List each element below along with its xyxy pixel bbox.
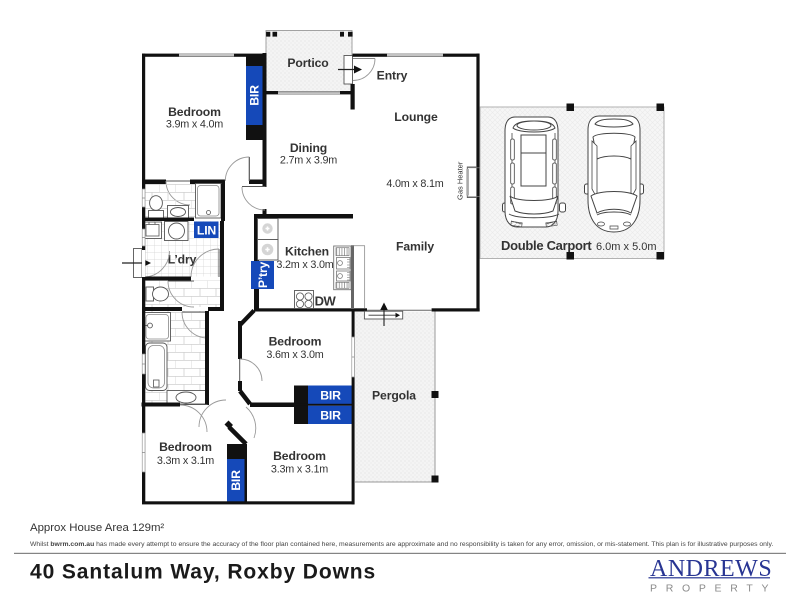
svg-text:6.0m x 5.0m: 6.0m x 5.0m: [596, 241, 657, 253]
svg-text:Portico: Portico: [287, 56, 328, 70]
svg-text:LIN: LIN: [197, 224, 217, 238]
svg-text:4.0m x 8.1m: 4.0m x 8.1m: [386, 178, 443, 190]
svg-text:Bedroom: Bedroom: [168, 105, 221, 119]
svg-text:BIR: BIR: [248, 85, 262, 106]
svg-text:Double Carport: Double Carport: [501, 238, 592, 253]
svg-text:Bedroom: Bedroom: [269, 335, 322, 349]
svg-text:Approx House Area 129m²: Approx House Area 129m²: [30, 522, 164, 534]
svg-text:3.2m x 3.0m: 3.2m x 3.0m: [276, 259, 333, 271]
svg-text:Family: Family: [396, 240, 434, 254]
svg-text:Dining: Dining: [290, 141, 327, 155]
svg-text:Entry: Entry: [377, 69, 408, 83]
svg-text:Kitchen: Kitchen: [285, 245, 329, 259]
svg-text:2.7m x 3.9m: 2.7m x 3.9m: [280, 155, 337, 167]
svg-text:P’try: P’try: [256, 261, 270, 288]
svg-text:3.6m x 3.0m: 3.6m x 3.0m: [266, 349, 323, 361]
svg-text:BIR: BIR: [229, 470, 243, 491]
svg-text:Bedroom: Bedroom: [273, 449, 326, 463]
svg-text:Gas Heater: Gas Heater: [456, 161, 465, 200]
svg-text:PROPERTY: PROPERTY: [650, 583, 777, 595]
svg-text:40 Santalum Way, Roxby Downs: 40 Santalum Way, Roxby Downs: [30, 561, 376, 584]
svg-text:Lounge: Lounge: [394, 110, 438, 124]
svg-text:Whilst bwrm.com.au has made ev: Whilst bwrm.com.au has made every attemp…: [30, 541, 773, 548]
svg-text:BIR: BIR: [320, 389, 341, 403]
svg-text:3.9m x 4.0m: 3.9m x 4.0m: [166, 119, 223, 131]
svg-text:3.3m x 3.1m: 3.3m x 3.1m: [157, 455, 214, 467]
svg-text:L’dry: L’dry: [168, 253, 197, 267]
svg-text:BIR: BIR: [320, 409, 341, 423]
svg-text:DW: DW: [315, 294, 337, 309]
svg-text:Bedroom: Bedroom: [159, 440, 212, 454]
svg-text:Pergola: Pergola: [372, 389, 416, 403]
svg-text:3.3m x 3.1m: 3.3m x 3.1m: [271, 464, 328, 476]
